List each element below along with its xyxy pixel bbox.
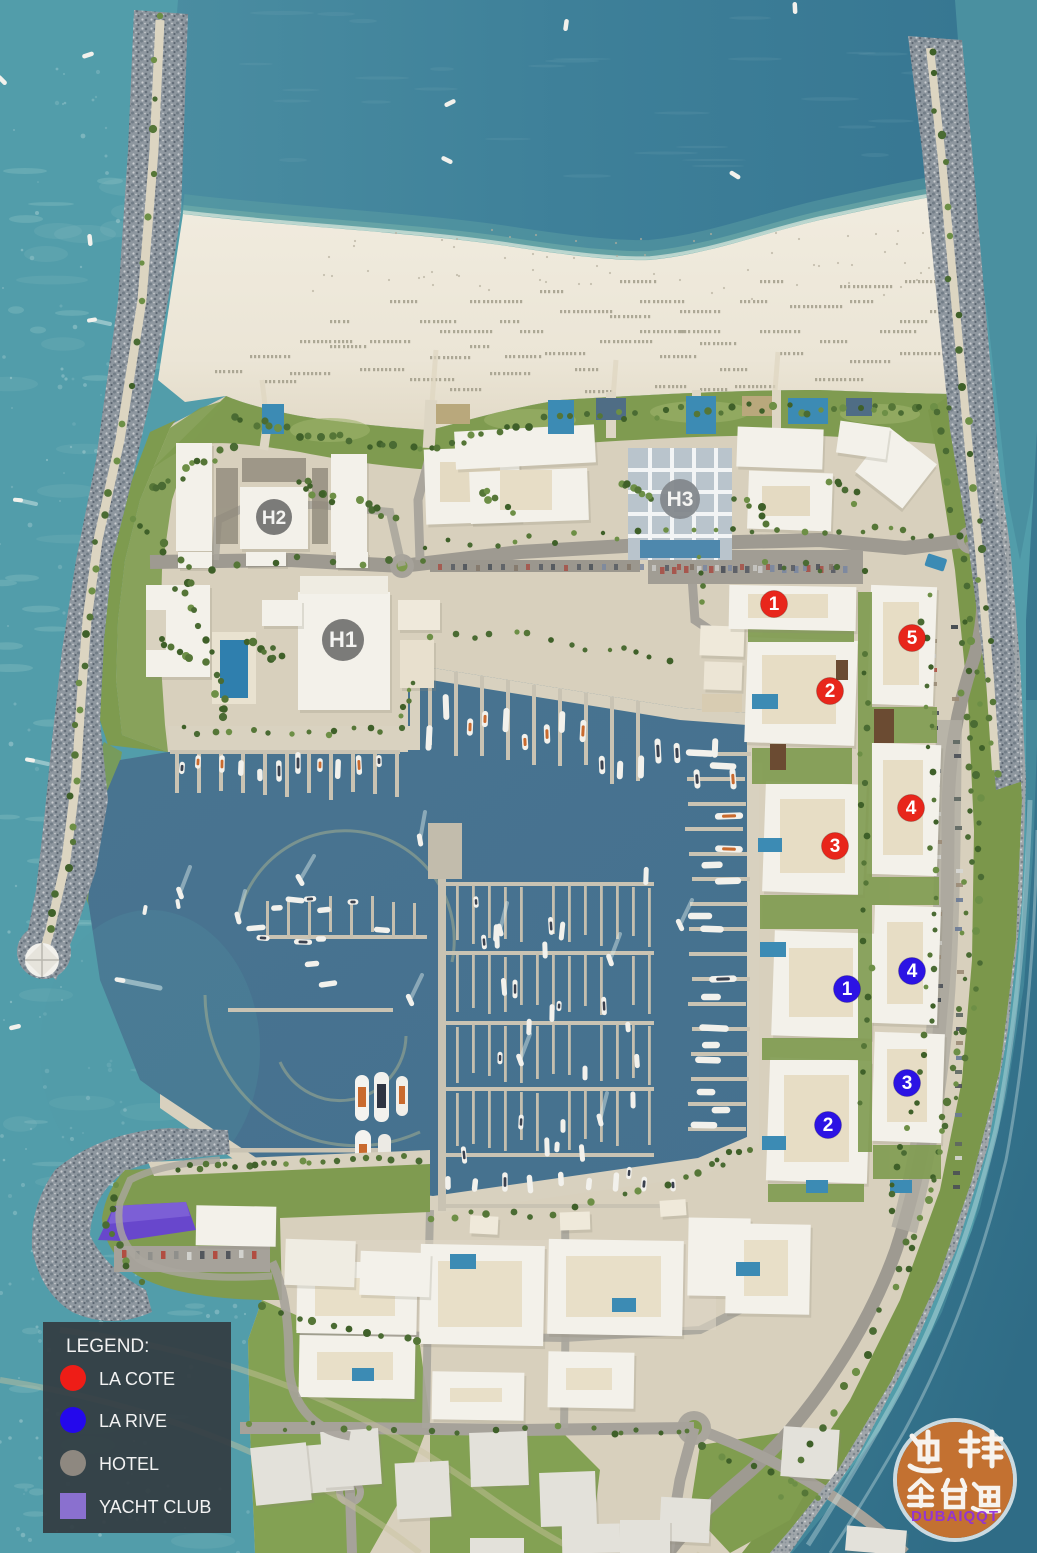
- svg-text:H3: H3: [667, 488, 694, 511]
- svg-text:YACHT CLUB: YACHT CLUB: [99, 1497, 211, 1517]
- svg-text:1: 1: [769, 594, 780, 615]
- svg-text:LA COTE: LA COTE: [99, 1369, 175, 1389]
- svg-text:3: 3: [830, 836, 841, 857]
- svg-text:2: 2: [823, 1115, 834, 1136]
- svg-text:H1: H1: [329, 627, 357, 652]
- svg-text:1: 1: [842, 979, 853, 1000]
- svg-text:2: 2: [825, 681, 836, 702]
- svg-text:4: 4: [906, 798, 917, 819]
- svg-text:LA RIVE: LA RIVE: [99, 1411, 167, 1431]
- svg-text:LEGEND:: LEGEND:: [66, 1336, 149, 1357]
- svg-text:H2: H2: [262, 508, 286, 529]
- svg-text:DUBAIQQT: DUBAIQQT: [911, 1508, 999, 1525]
- svg-text:5: 5: [907, 628, 918, 649]
- svg-text:HOTEL: HOTEL: [99, 1454, 159, 1474]
- svg-text:4: 4: [907, 961, 918, 982]
- svg-text:3: 3: [902, 1073, 913, 1094]
